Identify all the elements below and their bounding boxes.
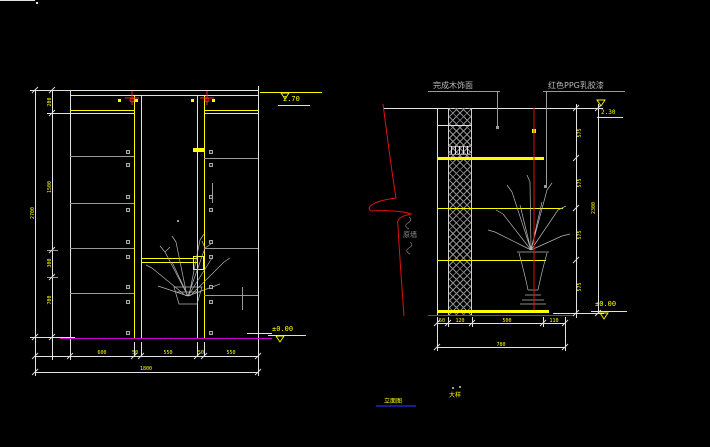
elev-000-left-underline [268, 335, 306, 336]
dim-value[interactable]: 500 [495, 318, 519, 324]
left-bay-soffit-1 [70, 110, 134, 111]
door-handle [242, 287, 243, 310]
highlight-shelf-bottom [141, 262, 197, 263]
wall-break-line [369, 104, 411, 316]
shelf-pin [209, 208, 213, 212]
floor-ext-line [247, 333, 272, 334]
shelf-pin [209, 285, 213, 289]
blocking-stud [467, 146, 468, 154]
leader-underline [428, 91, 500, 92]
highlight-top-clip [193, 148, 204, 152]
cad-canvas[interactable]: 2.70 ±0.00 200 1500 300 700 2700 600 50 … [0, 0, 710, 447]
title-underline [376, 405, 416, 407]
dim-value[interactable]: 575 [577, 223, 583, 247]
plant-block-right[interactable] [488, 175, 570, 304]
dim-line [598, 104, 599, 314]
base-thick-bar [437, 310, 549, 313]
highlight-shelf-top [141, 258, 197, 259]
cabinet-header-line [70, 95, 258, 96]
hatch-top-rail [437, 125, 472, 126]
dim-row-1 [35, 356, 258, 357]
shelf-pin [209, 300, 213, 304]
wall-hatch[interactable] [448, 108, 472, 315]
shelf-pin [126, 208, 130, 212]
dim-line [35, 90, 36, 376]
shelf-line [204, 295, 258, 296]
shelf-mid-1 [437, 208, 563, 209]
dim-value[interactable]: 600 [90, 350, 114, 356]
shelf-pin [126, 331, 130, 335]
shelf-pin [209, 331, 213, 335]
floor-line-left-view [60, 338, 272, 339]
fitting-square [212, 99, 215, 102]
elev-230-value[interactable]: 2.30 [601, 109, 615, 116]
view-scale[interactable]: 大样 [449, 392, 461, 399]
speck [459, 386, 461, 388]
dim-ext [472, 317, 473, 327]
blocking-stud [451, 146, 452, 154]
speck [452, 387, 454, 389]
dim-total[interactable]: 2300 [591, 196, 597, 220]
column-2-right [204, 95, 205, 338]
dim-ext [47, 277, 58, 278]
cabinet-left-edge [70, 90, 71, 360]
shelf-pin [126, 195, 130, 199]
shelf-pin [126, 240, 130, 244]
shelf-line [70, 156, 134, 157]
column-1-right [141, 95, 142, 338]
dim-value[interactable]: 50 [189, 350, 213, 356]
dim-value[interactable]: 300 [47, 251, 53, 275]
column-1-left [134, 95, 135, 338]
dim-row-2 [35, 372, 258, 373]
shelf-pin [209, 150, 213, 154]
ceiling-line [383, 108, 603, 109]
shelf-line [70, 248, 134, 249]
fitting-square [191, 99, 194, 102]
column-2-left [197, 95, 198, 338]
blocking-stud [463, 146, 464, 154]
leader-arrow [496, 126, 499, 129]
label-existing-wall[interactable]: 原墙 [403, 231, 417, 239]
elev-270-value[interactable]: 2.70 [283, 96, 300, 103]
panel-face-line [437, 108, 438, 315]
shelf-line [70, 293, 134, 294]
shelf-pin [209, 240, 213, 244]
blocking-stud [459, 146, 460, 154]
dim-total[interactable]: 2700 [30, 201, 36, 225]
leader-drop [546, 91, 547, 187]
label-red-ppg[interactable]: 红色PPG乳胶漆 [548, 82, 604, 90]
dim-value[interactable]: 110 [542, 318, 566, 324]
leader-drop [497, 91, 498, 128]
dim-value[interactable]: 575 [577, 275, 583, 299]
left-bay-soffit-2 [70, 113, 134, 114]
shelf-line [204, 248, 258, 249]
elev-270-underline [278, 105, 310, 106]
dim-value[interactable]: 120 [448, 318, 472, 324]
elev-000-right-underline [591, 311, 627, 312]
elev-000-left-value[interactable]: ±0.00 [272, 326, 293, 333]
frame-line [0, 0, 35, 1]
dim-ticks [32, 87, 601, 375]
shelf-pin [126, 255, 130, 259]
shelf-pin [126, 163, 130, 167]
shelf-pin [209, 195, 213, 199]
floor-line-right-view [428, 315, 573, 316]
plant-block-left[interactable] [146, 234, 230, 304]
blocking-bottom [448, 154, 472, 155]
door-handle [212, 183, 213, 203]
right-bay-soffit-2 [204, 113, 258, 114]
dim-value[interactable]: 575 [577, 171, 583, 195]
leader-arrow [544, 185, 547, 188]
right-bay-soffit-1 [204, 110, 258, 111]
cabinet-top-line [70, 90, 258, 91]
grip-dot [532, 129, 536, 133]
highlight-bracket [193, 256, 204, 270]
shelf-pin [209, 163, 213, 167]
elev-270-line [260, 92, 322, 93]
shelf-mid-2 [437, 260, 546, 261]
label-finish-wood[interactable]: 完成木饰面 [433, 82, 473, 90]
shelf-line [70, 203, 134, 204]
dim-value[interactable]: 550 [219, 350, 243, 356]
speck [177, 220, 179, 222]
dim-total[interactable]: 1800 [134, 366, 158, 372]
dim-value[interactable]: 200 [47, 90, 53, 114]
blocking-stud [455, 146, 456, 154]
fitting-square [118, 99, 121, 102]
shelf-pin [126, 300, 130, 304]
shelf-thick-top [437, 157, 544, 160]
elev-230-underline [597, 117, 623, 118]
floor-ext-line [553, 313, 604, 314]
shelf-pin [126, 285, 130, 289]
shelf-line [204, 158, 258, 159]
dim-ext [30, 337, 75, 338]
dim-value[interactable]: 50 [123, 350, 147, 356]
dim-value[interactable]: 550 [156, 350, 180, 356]
dim-line [52, 90, 53, 360]
dim-value[interactable]: 1500 [47, 175, 53, 199]
drawing-overlay [0, 0, 710, 447]
dim-value[interactable]: 575 [577, 121, 583, 145]
elevation-triangle-icon [276, 93, 608, 342]
frame-dot [36, 2, 38, 4]
shelf-pin [126, 150, 130, 154]
shelf-pin [209, 255, 213, 259]
fitting-square [135, 99, 138, 102]
dim-total[interactable]: 780 [489, 342, 513, 348]
dim-value[interactable]: 700 [47, 288, 53, 312]
view-title[interactable]: 立面图 [384, 398, 402, 405]
leader-underline [543, 91, 625, 92]
downlight-icon [125, 91, 214, 105]
